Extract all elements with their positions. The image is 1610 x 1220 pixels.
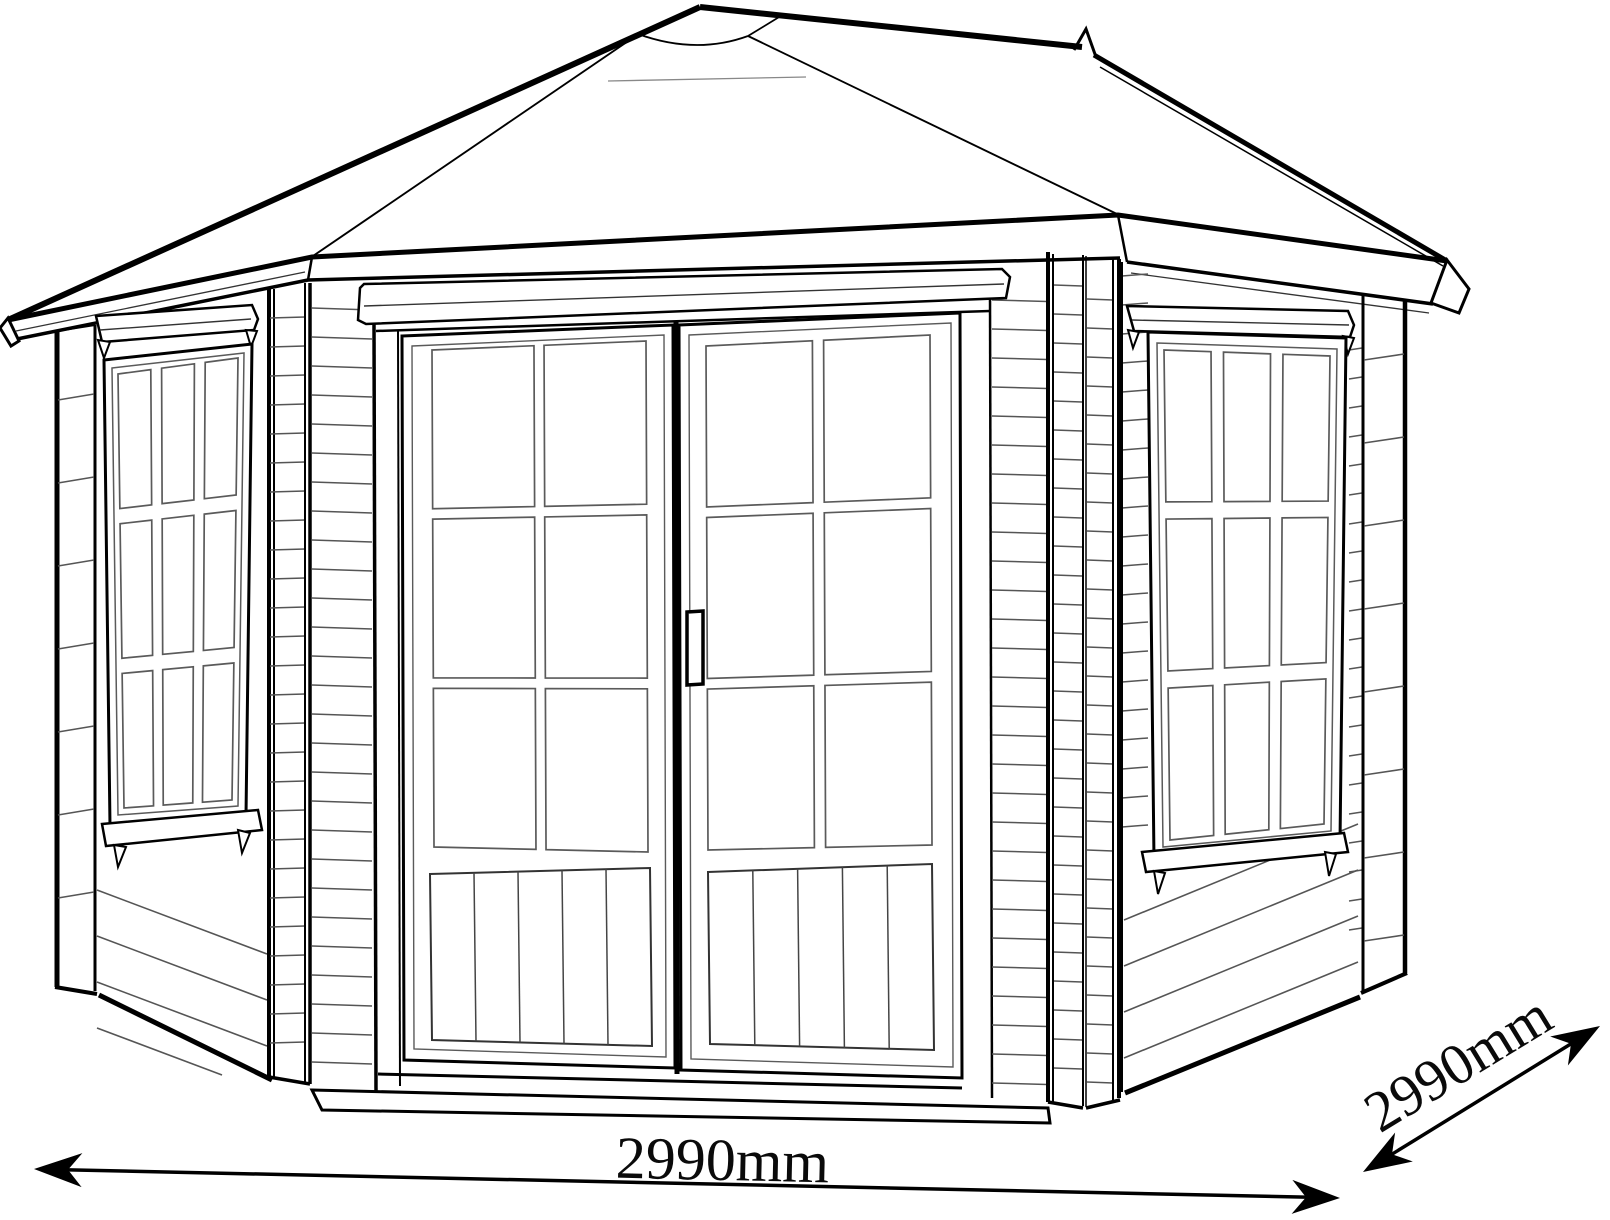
summerhouse-line-drawing: 2990mm 2990mm (0, 0, 1610, 1220)
double-doors (312, 269, 1050, 1123)
left-window (96, 305, 262, 867)
side-depth-dimension-label: 2990mm (1353, 982, 1563, 1145)
right-window (1127, 306, 1354, 894)
drawing-canvas: 2990mm 2990mm (0, 0, 1610, 1220)
front-width-dimension-label: 2990mm (615, 1125, 830, 1196)
door-handle (687, 611, 703, 685)
